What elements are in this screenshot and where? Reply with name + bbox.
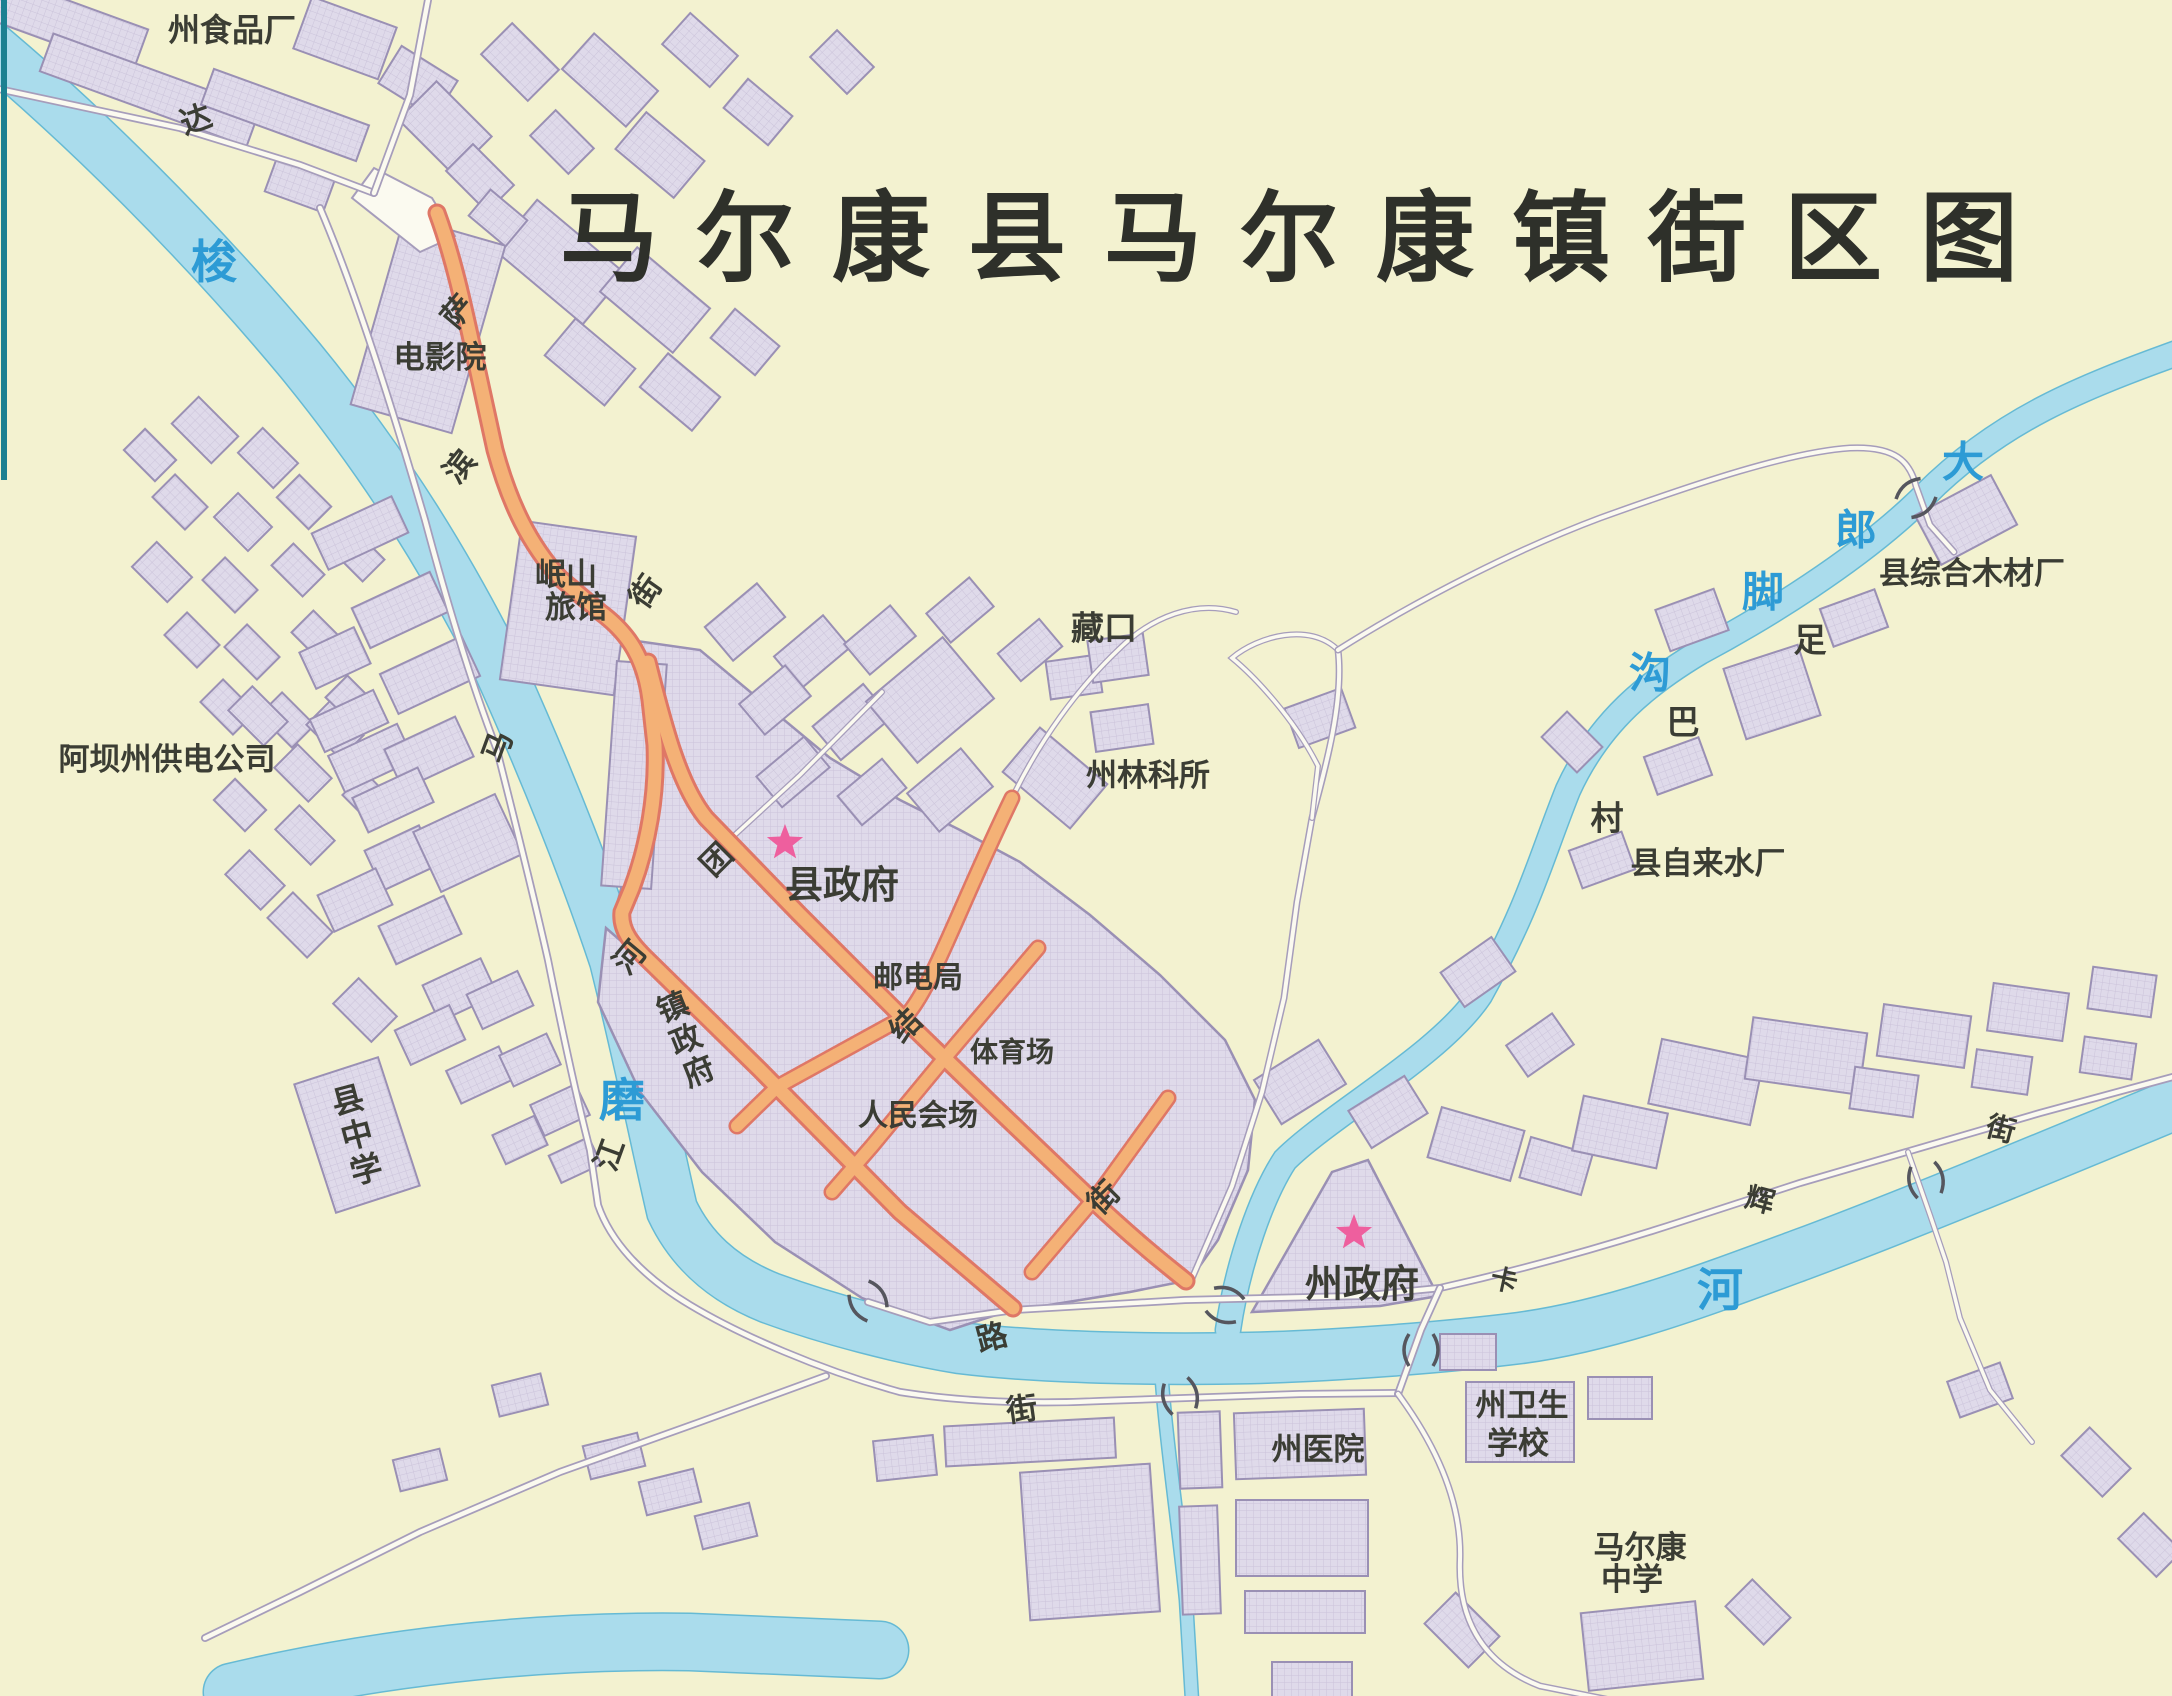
place-name-label: 人民会场: [858, 1099, 978, 1134]
building: [1581, 1601, 1704, 1691]
svg-text:梭: 梭: [191, 235, 238, 289]
svg-text:旅馆: 旅馆: [545, 590, 607, 626]
place-name-label: 州食品厂: [168, 11, 296, 49]
place-name-label: 岷山: [535, 557, 597, 593]
svg-text:人民会场: 人民会场: [858, 1099, 978, 1134]
place-name-label: 电影院: [394, 340, 487, 376]
place-name-label: 中学: [1601, 1562, 1663, 1598]
place-name-label: 州林科所: [1086, 758, 1210, 794]
svg-text:沟: 沟: [1629, 649, 1671, 698]
river-name-label: 河: [1697, 1263, 1743, 1317]
svg-text:足: 足: [1794, 621, 1827, 660]
place-name-label: 州医院: [1272, 1432, 1365, 1468]
building: [1272, 1662, 1352, 1696]
svg-text:州医院: 州医院: [1272, 1432, 1365, 1468]
building: [1245, 1591, 1365, 1633]
svg-text:州政府: 州政府: [1305, 1262, 1419, 1306]
river-name-label: 梭: [191, 235, 238, 289]
svg-text:巴: 巴: [1667, 703, 1700, 742]
building: [2080, 1037, 2137, 1080]
svg-text:学校: 学校: [1487, 1426, 1549, 1462]
svg-text:州卫生: 州卫生: [1476, 1388, 1569, 1424]
svg-text:中学: 中学: [1601, 1562, 1663, 1598]
building: [1178, 1411, 1223, 1488]
place-name-label: 村: [1591, 799, 1624, 838]
building: [1972, 1049, 2033, 1094]
svg-text:邮电局: 邮电局: [873, 961, 963, 996]
river-name-label: 沟: [1629, 649, 1671, 698]
place-name-label: 县综合木材厂: [1879, 556, 2065, 592]
place-name-label: 邮电局: [873, 961, 963, 996]
place-name-label: 县自来水厂: [1631, 846, 1786, 882]
svg-text:电影院: 电影院: [394, 340, 487, 376]
place-name-label: 体育场: [970, 1036, 1054, 1069]
svg-text:马尔康: 马尔康: [1594, 1530, 1688, 1566]
place-name-label: 足: [1794, 621, 1827, 660]
building: [1877, 1004, 1971, 1068]
svg-text:岷山: 岷山: [535, 557, 597, 593]
svg-text:村: 村: [1591, 799, 1624, 838]
svg-text:县自来水厂: 县自来水厂: [1631, 846, 1786, 882]
building: [1236, 1500, 1368, 1576]
svg-text:磨: 磨: [599, 1073, 645, 1127]
svg-text:体育场: 体育场: [970, 1036, 1054, 1069]
building: [1179, 1505, 1221, 1614]
place-name-label: 州卫生: [1476, 1388, 1569, 1424]
building: [1090, 704, 1153, 752]
place-name-label: 巴: [1667, 703, 1700, 742]
svg-text:阿坝州供电公司: 阿坝州供电公司: [59, 742, 276, 778]
building: [1987, 983, 2069, 1041]
svg-text:河: 河: [1697, 1263, 1743, 1317]
place-name-label: 马尔康: [1594, 1530, 1688, 1566]
place-name-label: 学校: [1487, 1426, 1549, 1462]
svg-text:藏口: 藏口: [1071, 609, 1137, 648]
building: [873, 1435, 937, 1481]
place-name-label: 阿坝州供电公司: [59, 742, 276, 778]
river-name-label: 脚: [1742, 568, 1784, 617]
place-name-label: 旅馆: [545, 590, 607, 626]
map-canvas: 州食品厂电影院岷山旅馆阿坝州供电公司县中学县政府邮电局体育场人民会场镇政府藏口州…: [0, 0, 2172, 1696]
building: [2087, 967, 2156, 1017]
svg-text:脚: 脚: [1742, 568, 1784, 617]
svg-text:县政府: 县政府: [785, 863, 899, 907]
svg-text:街: 街: [1003, 1390, 1040, 1430]
street-name-label: 街: [1003, 1390, 1040, 1430]
place-name-label: 藏口: [1071, 609, 1137, 648]
svg-text:县综合木材厂: 县综合木材厂: [1879, 556, 2065, 592]
building: [1440, 1334, 1496, 1370]
map-title: 马尔康县马尔康镇街区图: [560, 182, 2056, 296]
building: [1849, 1067, 1918, 1117]
svg-text:大: 大: [1942, 438, 1984, 487]
river-name-label: 磨: [599, 1073, 645, 1127]
river-name-label: 郎: [1835, 506, 1877, 555]
place-name-label: 州政府: [1305, 1262, 1419, 1306]
building: [1588, 1377, 1652, 1419]
river-name-label: 大: [1942, 438, 1984, 487]
svg-text:州食品厂: 州食品厂: [168, 11, 296, 49]
building: [1020, 1464, 1160, 1621]
street-map: 州食品厂电影院岷山旅馆阿坝州供电公司县中学县政府邮电局体育场人民会场镇政府藏口州…: [0, 0, 2172, 1696]
svg-text:州林科所: 州林科所: [1086, 758, 1210, 794]
place-name-label: 县政府: [785, 863, 899, 907]
svg-text:郎: 郎: [1835, 506, 1877, 555]
